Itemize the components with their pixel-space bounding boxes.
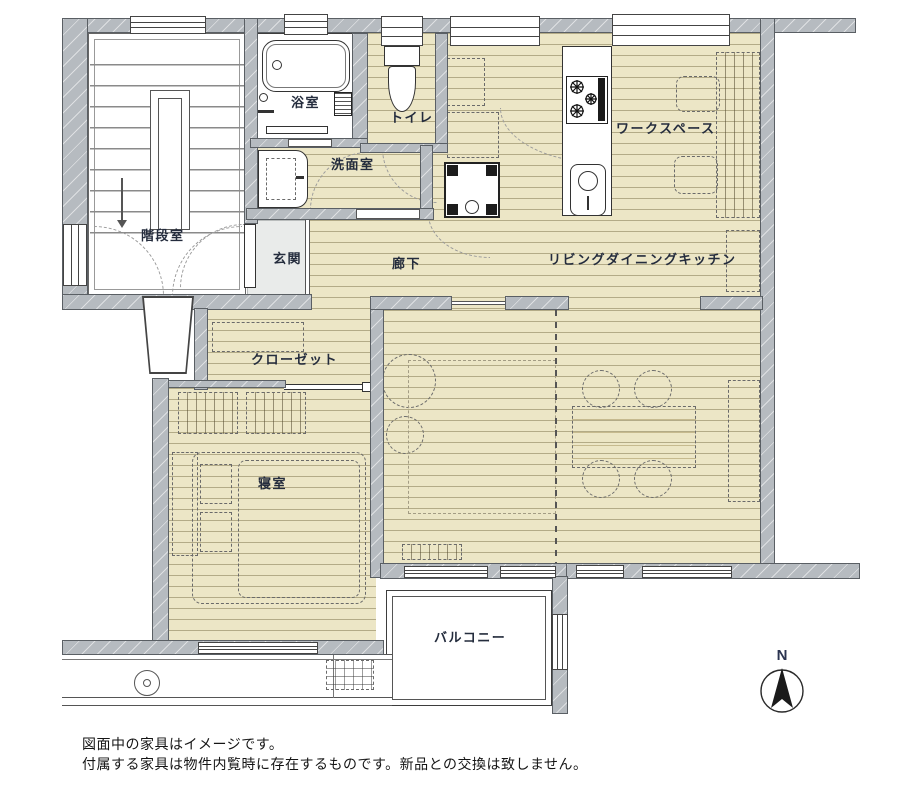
stove xyxy=(566,76,608,124)
wall-hall-living-b xyxy=(505,296,569,310)
window-sill-items xyxy=(402,544,462,560)
window-workspace-top xyxy=(612,14,730,46)
label-bedroom: 寝室 xyxy=(258,477,287,490)
entry-door xyxy=(244,224,256,288)
stair-stringer-inner xyxy=(158,98,182,230)
stair-arrow-head xyxy=(117,220,127,228)
washer-drain xyxy=(465,200,479,214)
label-ldk: リビングダイニングキッチン xyxy=(548,253,737,266)
rug xyxy=(408,360,556,514)
sink-bowl xyxy=(578,171,598,191)
window-hall-top xyxy=(450,16,540,46)
note-line-2: 付属する家具は物件内覧時に存在するものです。新品との交換は致しません。 xyxy=(82,754,588,774)
storage-space xyxy=(447,112,499,158)
washbasin-faucet-icon xyxy=(296,176,304,179)
bedroom-closet-1 xyxy=(178,392,238,434)
wall-hall-living-a xyxy=(370,296,452,310)
north-compass: N xyxy=(752,648,812,722)
window-living-bottom-4 xyxy=(642,566,732,578)
washer-pad-tr xyxy=(486,165,497,176)
wall-hall-living-c xyxy=(700,296,763,310)
pipe-shaft-inner xyxy=(144,298,192,372)
bath-door xyxy=(288,139,332,147)
workspace-chair-2 xyxy=(674,156,718,194)
dining-table xyxy=(572,406,696,468)
closet-sliding-door xyxy=(284,384,370,390)
wall-toilet-right xyxy=(435,33,448,145)
wall-stair-right xyxy=(244,18,258,224)
stove-burners-icon xyxy=(567,77,606,122)
closet-shelf xyxy=(212,322,304,352)
wall-living-left xyxy=(370,296,384,578)
label-workspace: ワークスペース xyxy=(616,122,716,135)
shower-fixture-icon xyxy=(259,93,268,102)
sink-faucet-icon xyxy=(587,196,589,210)
bed-pillow-2 xyxy=(200,512,232,552)
dining-chair-4 xyxy=(634,460,672,498)
floor-plan: 浴室 トイレ 洗面室 階段室 玄関 廊下 リビングダイニングキッチン ワークスペ… xyxy=(0,0,900,800)
label-closet: クローゼット xyxy=(251,353,338,366)
balcony-post-top xyxy=(552,576,568,616)
north-label: N xyxy=(752,648,812,664)
entrance-step-line xyxy=(305,220,310,296)
bathtub-drain xyxy=(272,60,282,70)
window-living-bottom-3 xyxy=(576,565,624,578)
window-toilet-top xyxy=(381,16,423,46)
bed-pillow-1 xyxy=(200,464,232,504)
dining-chair-2 xyxy=(634,370,672,408)
wall-bath-right xyxy=(352,33,368,145)
window-stairwell-top xyxy=(130,16,206,34)
north-arrow-icon xyxy=(756,664,808,718)
toilet-tank xyxy=(384,46,420,66)
window-balcony-right xyxy=(552,614,568,670)
label-balcony: バルコニー xyxy=(434,631,506,644)
bath-cabinet xyxy=(334,92,352,116)
ac-outdoor-unit xyxy=(326,660,374,690)
washbasin-bowl xyxy=(266,158,296,200)
window-living-bottom-2 xyxy=(500,566,556,578)
window-stairwell-left xyxy=(63,224,87,286)
label-bathroom: 浴室 xyxy=(291,96,320,109)
stair-arrow-line xyxy=(121,178,123,220)
refrigerator-space xyxy=(447,58,485,106)
label-toilet: トイレ xyxy=(390,111,434,124)
sliding-door-track xyxy=(452,301,505,305)
label-entrance: 玄関 xyxy=(273,252,302,265)
sideboard xyxy=(728,380,760,502)
label-hallway: 廊下 xyxy=(392,257,421,270)
wall-closet-left xyxy=(194,308,208,390)
workspace-chair-1 xyxy=(676,76,720,112)
window-bedroom-bottom xyxy=(198,642,318,654)
workspace-desk xyxy=(716,52,760,218)
label-washroom: 洗面室 xyxy=(331,158,375,171)
bed-duvet xyxy=(238,460,360,598)
window-bathroom-top xyxy=(284,14,328,35)
balcony-post-bottom xyxy=(552,668,568,714)
wall-bedroom-top xyxy=(168,380,286,388)
bath-counter xyxy=(266,126,328,134)
washroom-door xyxy=(356,209,420,219)
bath-faucet-icon xyxy=(258,110,274,113)
bedroom-closet-2 xyxy=(246,392,306,434)
balcony-floor xyxy=(386,590,552,706)
dining-chair-1 xyxy=(582,370,620,408)
wall-bedroom-left xyxy=(152,378,169,654)
balcony-drain-inner xyxy=(143,679,151,687)
window-living-bottom-1 xyxy=(404,566,488,578)
dining-chair-3 xyxy=(582,460,620,498)
wall-toilet-bottom xyxy=(360,143,448,153)
label-stairwell: 階段室 xyxy=(141,229,185,242)
room-divider xyxy=(555,310,557,565)
note-line-1: 図面中の家具はイメージです。 xyxy=(82,734,283,754)
balcony-edge-lines xyxy=(62,697,392,706)
washer-pad-tl xyxy=(447,165,458,176)
